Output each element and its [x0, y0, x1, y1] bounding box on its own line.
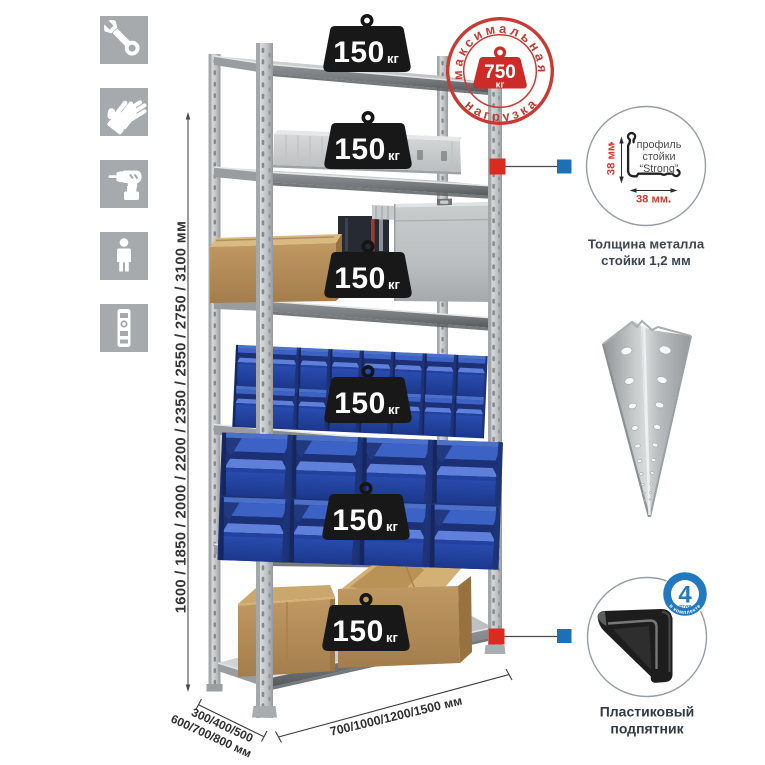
- svg-text:1600 / 1850 / 2000 / 2200 / 23: 1600 / 1850 / 2000 / 2200 / 2350 / 2550 …: [174, 221, 190, 613]
- svg-text:Пластиковый: Пластиковый: [600, 704, 695, 720]
- svg-text:38 мм: 38 мм: [606, 143, 618, 175]
- svg-text:38 мм: 38 мм: [636, 194, 668, 206]
- svg-text:“Strong”: “Strong”: [639, 163, 678, 175]
- svg-text:стойки 1,2 мм: стойки 1,2 мм: [601, 253, 691, 268]
- svg-text:профиль: профиль: [637, 139, 682, 151]
- svg-text:штуки: штуки: [679, 603, 692, 608]
- svg-text:подпятник: подпятник: [610, 721, 684, 737]
- svg-text:Толщина металла: Толщина металла: [588, 237, 705, 252]
- svg-text:кг: кг: [496, 80, 505, 91]
- svg-text:стойки: стойки: [642, 151, 675, 163]
